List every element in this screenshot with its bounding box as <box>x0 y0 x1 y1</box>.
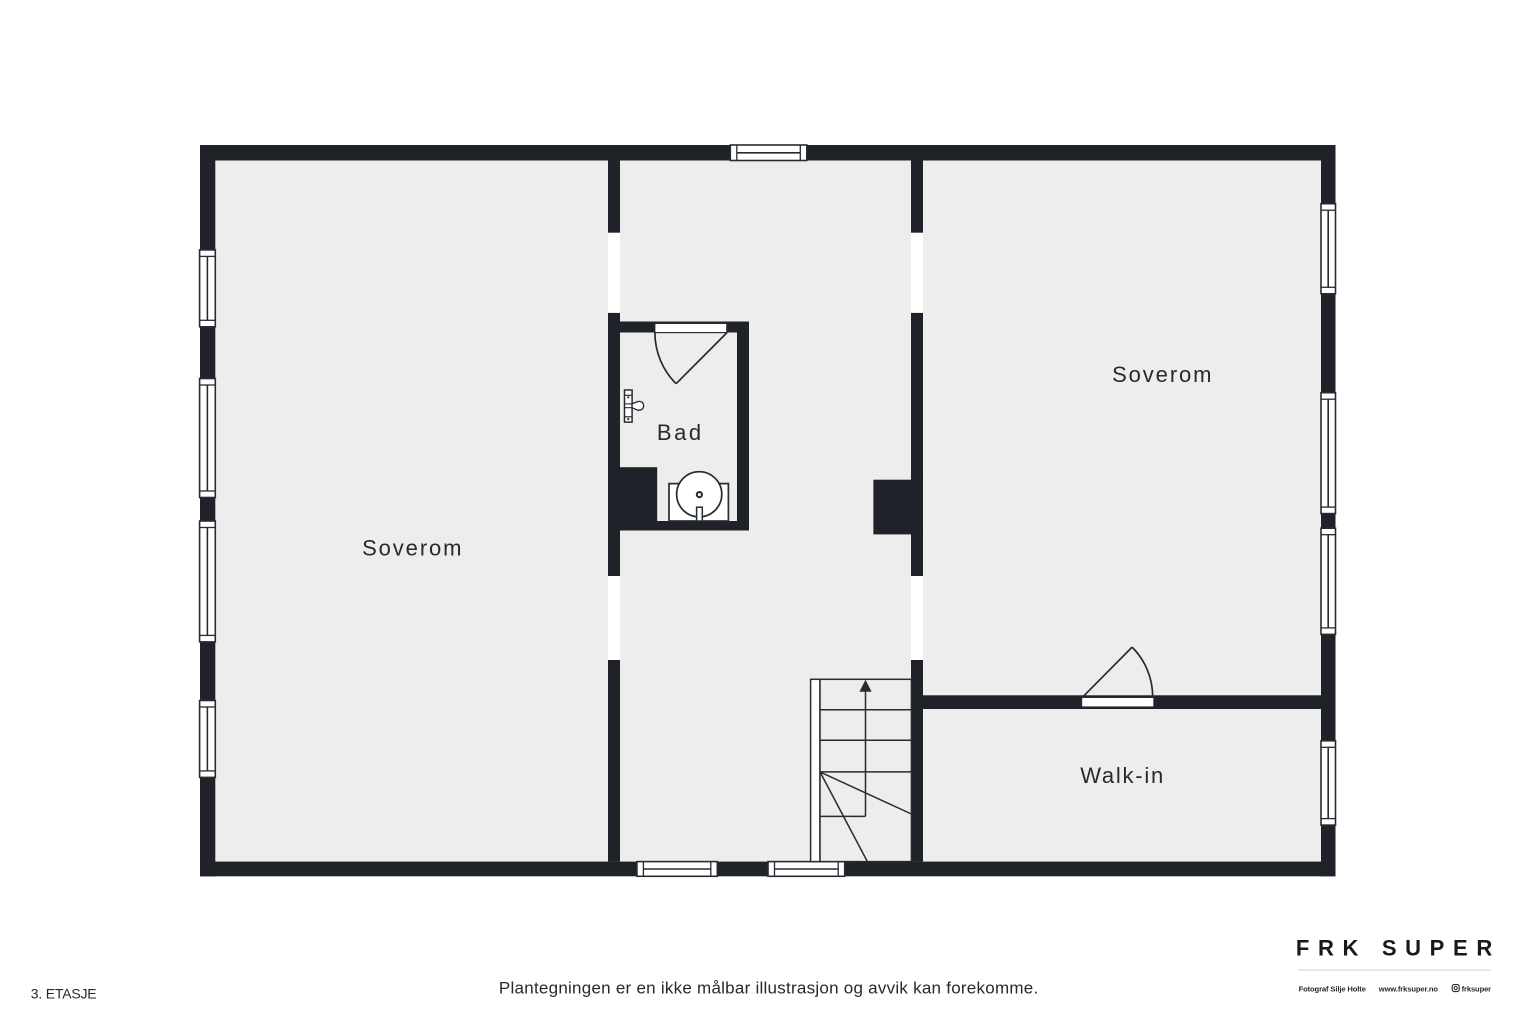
svg-text:Soverom: Soverom <box>1112 362 1213 387</box>
svg-text:frksuper: frksuper <box>1462 985 1492 994</box>
svg-text:www.frksuper.no: www.frksuper.no <box>1378 985 1439 994</box>
svg-text:Bad: Bad <box>657 420 704 445</box>
svg-text:3. ETASJE: 3. ETASJE <box>31 985 97 1001</box>
svg-text:Walk-in: Walk-in <box>1080 763 1165 788</box>
svg-text:Soverom: Soverom <box>362 536 463 561</box>
svg-text:FRK SUPER: FRK SUPER <box>1296 935 1501 960</box>
svg-text:Fotograf Silje Holte: Fotograf Silje Holte <box>1299 985 1366 994</box>
svg-text:Plantegningen er en ikke målba: Plantegningen er en ikke målbar illustra… <box>499 979 1039 998</box>
